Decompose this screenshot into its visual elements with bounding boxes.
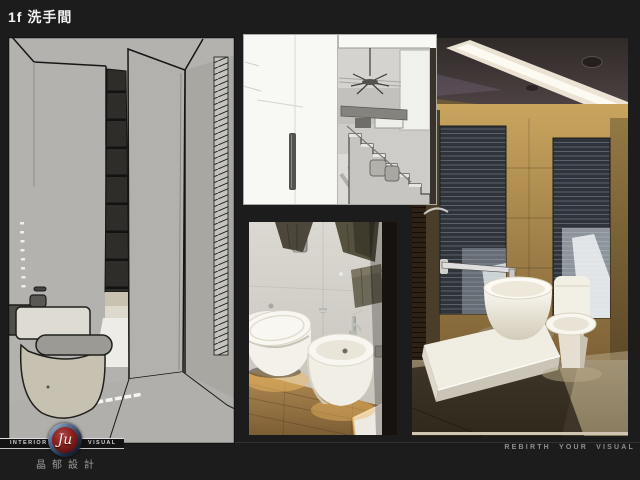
brand-visual-label: VISUAL [88, 440, 117, 447]
photo-bottom-edge [412, 432, 628, 435]
ju-monogram: Ju [58, 432, 73, 448]
sketch-right-wall [185, 39, 235, 409]
page-title: 1f 洗手間 [8, 7, 72, 27]
ju-monogram-disc: Ju [52, 427, 78, 453]
stair-room-sketch [338, 48, 437, 205]
photo-vanity-bathroom [412, 38, 628, 436]
sketch-bathroom-perspective [8, 37, 235, 444]
footer-tagline: REBIRTH YOUR VISUAL [504, 444, 635, 451]
brand-interior-label: INTERIOR [10, 440, 47, 447]
sketch-cabinet-stairs [243, 34, 437, 205]
sketch-partition-wall [128, 49, 185, 379]
robe-hook [268, 303, 274, 309]
photo-toilet-bidet [249, 222, 397, 435]
presentation-slide: 1f 洗手間 [0, 0, 640, 480]
shadow-edge [382, 222, 397, 435]
ju-logo: Ju [48, 423, 82, 457]
brand-chinese-name: 晶郁設計 [36, 456, 100, 471]
